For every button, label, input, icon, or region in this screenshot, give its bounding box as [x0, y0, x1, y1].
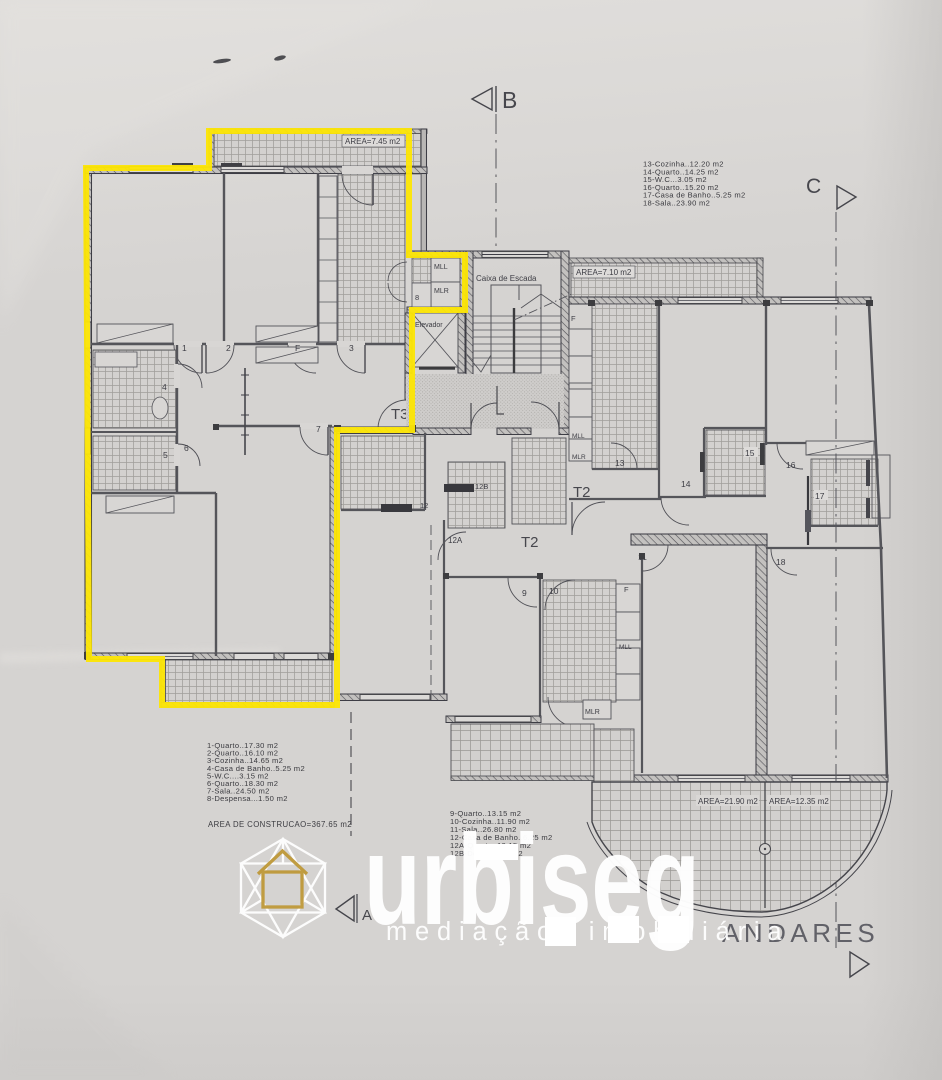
svg-text:18-Sala..23.90 m2: 18-Sala..23.90 m2: [643, 199, 710, 208]
svg-text:MLL: MLL: [619, 644, 632, 651]
svg-text:F: F: [624, 585, 629, 594]
svg-text:AREA=21.90 m2: AREA=21.90 m2: [698, 797, 758, 806]
svg-text:B: B: [502, 87, 517, 113]
svg-text:18: 18: [776, 557, 786, 567]
svg-text:AREA=7.45 m2: AREA=7.45 m2: [345, 137, 401, 146]
svg-text:7: 7: [316, 424, 321, 434]
svg-text:F: F: [295, 343, 300, 353]
svg-text:8-Despensa...1.50 m2: 8-Despensa...1.50 m2: [207, 794, 288, 803]
svg-text:T3: T3: [391, 406, 409, 423]
svg-text:3: 3: [349, 343, 354, 353]
svg-text:14: 14: [681, 479, 691, 489]
svg-text:Elevador: Elevador: [415, 322, 443, 329]
svg-text:1: 1: [182, 343, 187, 353]
svg-text:AREA DE CONSTRUCAO=367.65 m: AREA DE CONSTRUCAO=367.65 m2: [208, 820, 352, 829]
svg-text:C: C: [806, 175, 821, 198]
svg-text:8: 8: [415, 293, 419, 302]
svg-text:6: 6: [184, 443, 189, 453]
svg-text:15: 15: [745, 448, 755, 458]
svg-text:13: 13: [615, 458, 625, 468]
svg-text:16: 16: [786, 460, 796, 470]
svg-text:AREA=7.10 m2: AREA=7.10 m2: [576, 268, 632, 277]
svg-text:12A: 12A: [448, 536, 463, 545]
svg-text:12B: 12B: [475, 482, 488, 491]
svg-text:2: 2: [226, 343, 231, 353]
svg-text:12: 12: [420, 501, 428, 510]
svg-text:Caixa de Escada: Caixa de Escada: [476, 274, 537, 283]
svg-text:10: 10: [549, 586, 559, 596]
svg-text:AREA=12.35 m2: AREA=12.35 m2: [769, 797, 829, 806]
svg-text:MLL: MLL: [434, 264, 448, 271]
svg-text:9: 9: [522, 588, 527, 598]
svg-text:mediação imobiliária: mediação imobiliária: [386, 918, 789, 946]
svg-text:4: 4: [162, 382, 167, 392]
svg-text:MLL: MLL: [572, 433, 585, 440]
svg-text:5: 5: [163, 450, 168, 460]
svg-text:MLR: MLR: [572, 454, 586, 461]
svg-text:17: 17: [815, 491, 825, 501]
svg-text:MLR: MLR: [434, 288, 449, 295]
svg-text:MLR: MLR: [585, 709, 600, 716]
svg-text:F: F: [571, 314, 576, 323]
svg-text:T2: T2: [521, 534, 539, 551]
